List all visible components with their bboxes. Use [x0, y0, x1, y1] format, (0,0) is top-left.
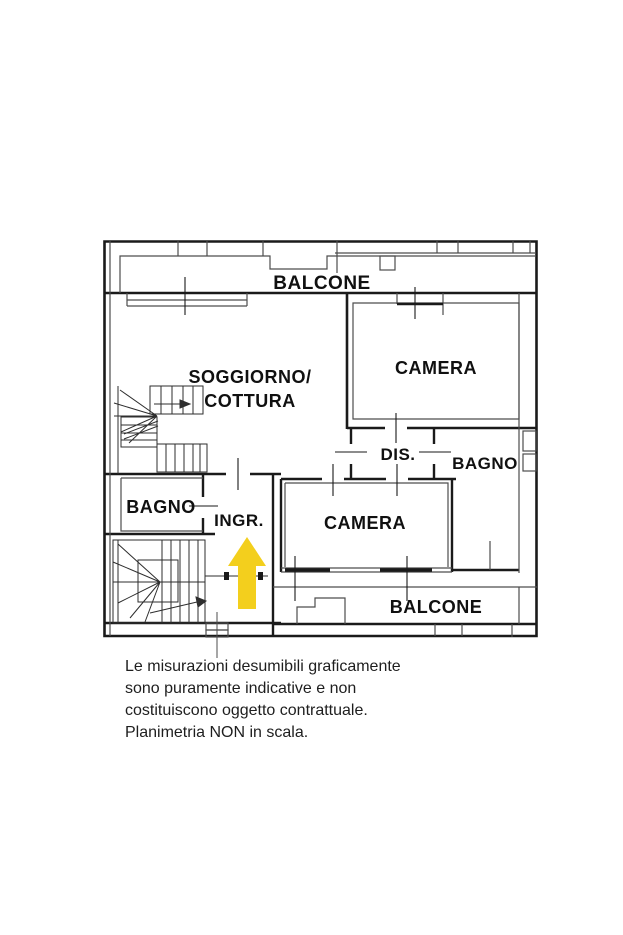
- disclaimer-line: Le misurazioni desumibili graficamente: [125, 656, 485, 678]
- main-staircase: [113, 540, 206, 623]
- room-label-camera-top: CAMERA: [395, 358, 477, 378]
- room-label-ingresso: INGR.: [214, 511, 264, 530]
- disclaimer-line: Planimetria NON in scala.: [125, 722, 485, 744]
- disclaimer-line: costituiscono oggetto contrattuale.: [125, 700, 485, 722]
- room-labels: BALCONE SOGGIORNO/ COTTURA CAMERA DIS. B…: [126, 273, 518, 617]
- room-label-bagno-left: BAGNO: [126, 497, 196, 517]
- floor-plan: BALCONE SOGGIORNO/ COTTURA CAMERA DIS. B…: [0, 0, 623, 935]
- entrance-door: [205, 572, 268, 580]
- floor-plan-page: BALCONE SOGGIORNO/ COTTURA CAMERA DIS. B…: [0, 0, 623, 935]
- disclaimer: Le misurazioni desumibili graficamente s…: [125, 656, 485, 744]
- room-label-bagno-right: BAGNO: [452, 454, 518, 473]
- floor-plan-drawing: BALCONE SOGGIORNO/ COTTURA CAMERA DIS. B…: [0, 0, 623, 935]
- room-label-balcone-top: BALCONE: [273, 273, 370, 294]
- room-label-dis: DIS.: [380, 445, 415, 464]
- door-ticks: [185, 277, 451, 601]
- room-label-soggiorno-line1: SOGGIORNO/: [188, 367, 311, 387]
- disclaimer-line: sono puramente indicative e non: [125, 678, 485, 700]
- room-label-balcone-bottom: BALCONE: [390, 597, 483, 617]
- thin-lines: [110, 241, 537, 658]
- room-label-camera-bottom: CAMERA: [324, 513, 406, 533]
- internal-staircase: [114, 386, 207, 474]
- outer-walls: [104, 242, 537, 637]
- room-label-soggiorno-line2: COTTURA: [204, 391, 296, 411]
